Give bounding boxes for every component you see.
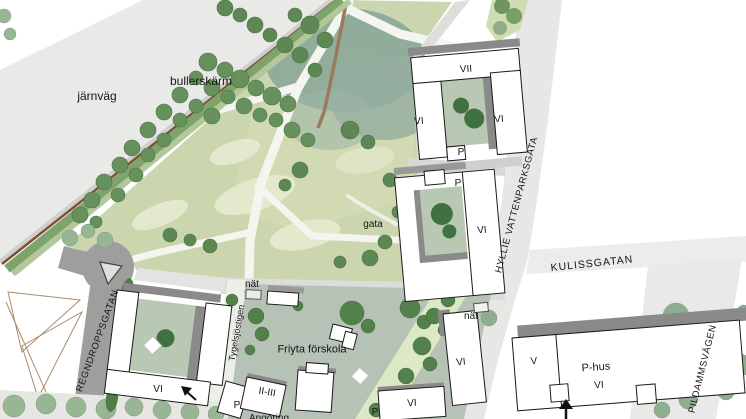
site-plan-canvas xyxy=(0,0,746,419)
label-nat-east: nät xyxy=(464,312,478,322)
label-jarnvag: järnväg xyxy=(77,90,116,102)
label-vi-p-hus: VI xyxy=(594,381,604,392)
label-angoring: Angöring xyxy=(249,414,289,419)
label-v-p-hus: V xyxy=(530,357,537,367)
label-vi-tall: VI xyxy=(456,358,466,369)
label-vi-ne-west: VI xyxy=(414,117,424,128)
label-friyta-forskola: Friyta förskola xyxy=(277,345,346,356)
label-vi-east: VI xyxy=(477,226,487,237)
label-p-path: P xyxy=(372,408,379,418)
utility-box-west xyxy=(246,290,261,300)
building-block-east xyxy=(394,159,505,301)
label-vi-ne-east: VI xyxy=(494,115,504,126)
label-vi-southwest: VI xyxy=(153,385,162,395)
label-vi-bottom: VI xyxy=(407,399,417,409)
label-gata: gata xyxy=(363,220,382,230)
site-plan: järnväg bullerskärm VII VI VI P P VI HYL… xyxy=(0,0,746,419)
label-p-ne: P xyxy=(458,148,465,158)
label-p-hus: P-hus xyxy=(581,362,610,375)
label-nat-west: nät xyxy=(245,280,259,290)
label-p-east: P xyxy=(455,179,462,189)
label-vii: VII xyxy=(460,65,473,76)
label-bullerskarm: bullerskärm xyxy=(170,75,232,87)
label-p-southwest: P xyxy=(234,401,241,411)
